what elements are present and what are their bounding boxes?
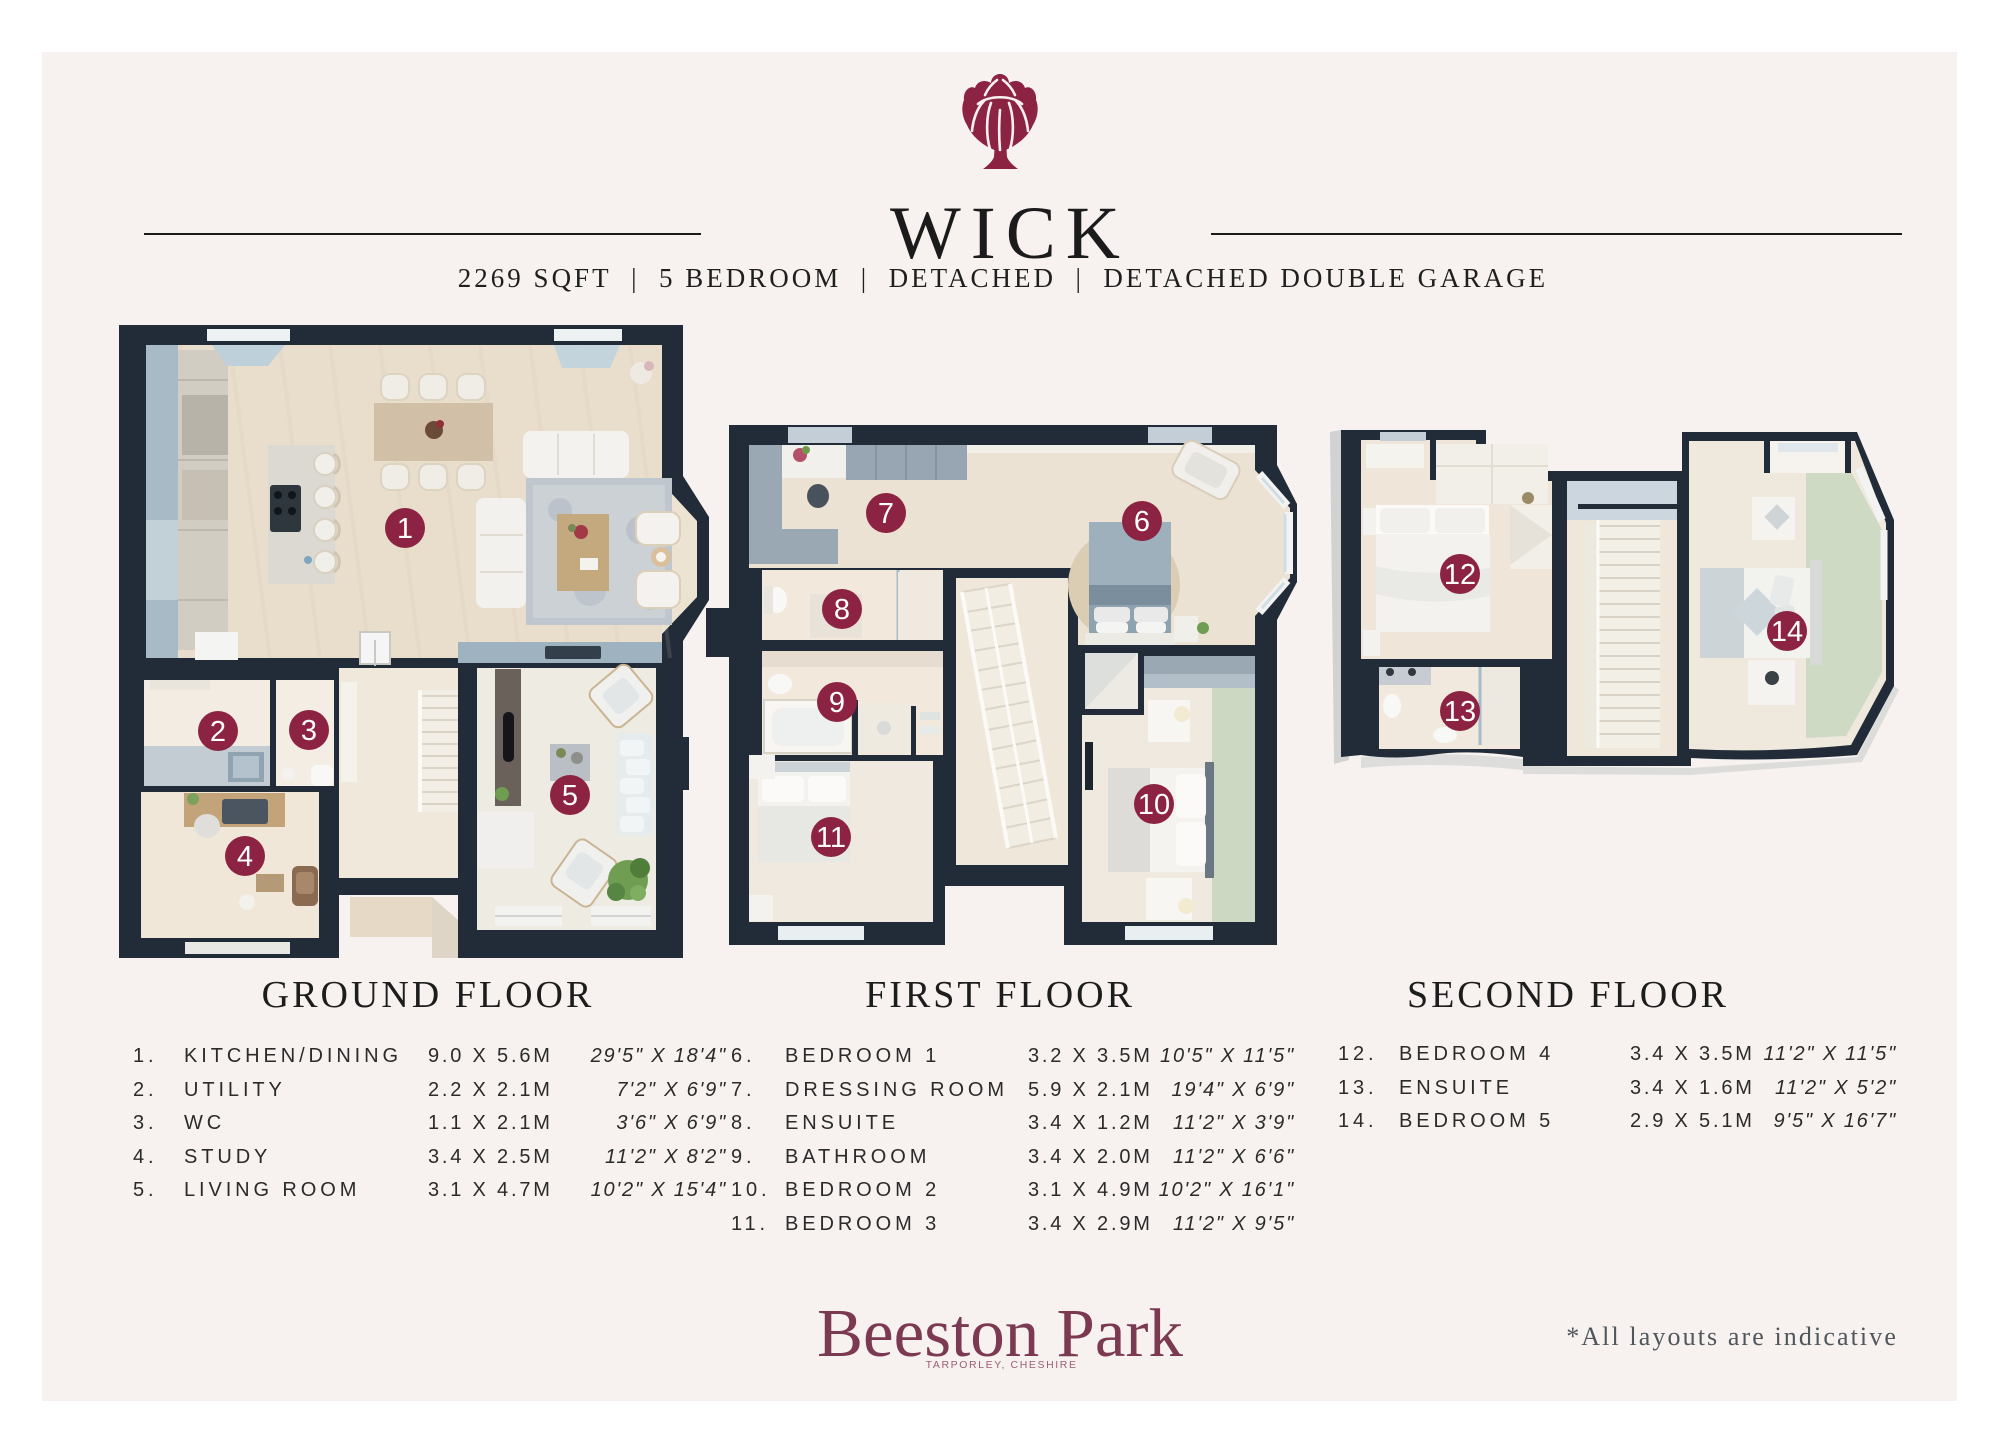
svg-text:1: 1: [397, 513, 413, 545]
svg-text:10: 10: [1138, 789, 1170, 821]
svg-text:8: 8: [834, 594, 850, 626]
svg-text:12: 12: [1444, 559, 1476, 591]
svg-text:5: 5: [562, 780, 578, 812]
svg-text:6: 6: [1134, 506, 1150, 538]
svg-text:4: 4: [237, 841, 253, 873]
svg-text:2: 2: [210, 716, 226, 748]
svg-text:3: 3: [301, 715, 317, 747]
svg-text:13: 13: [1444, 696, 1476, 728]
svg-text:11: 11: [816, 822, 846, 854]
svg-text:9: 9: [829, 687, 845, 719]
svg-text:14: 14: [1771, 616, 1803, 648]
svg-text:7: 7: [878, 498, 894, 530]
